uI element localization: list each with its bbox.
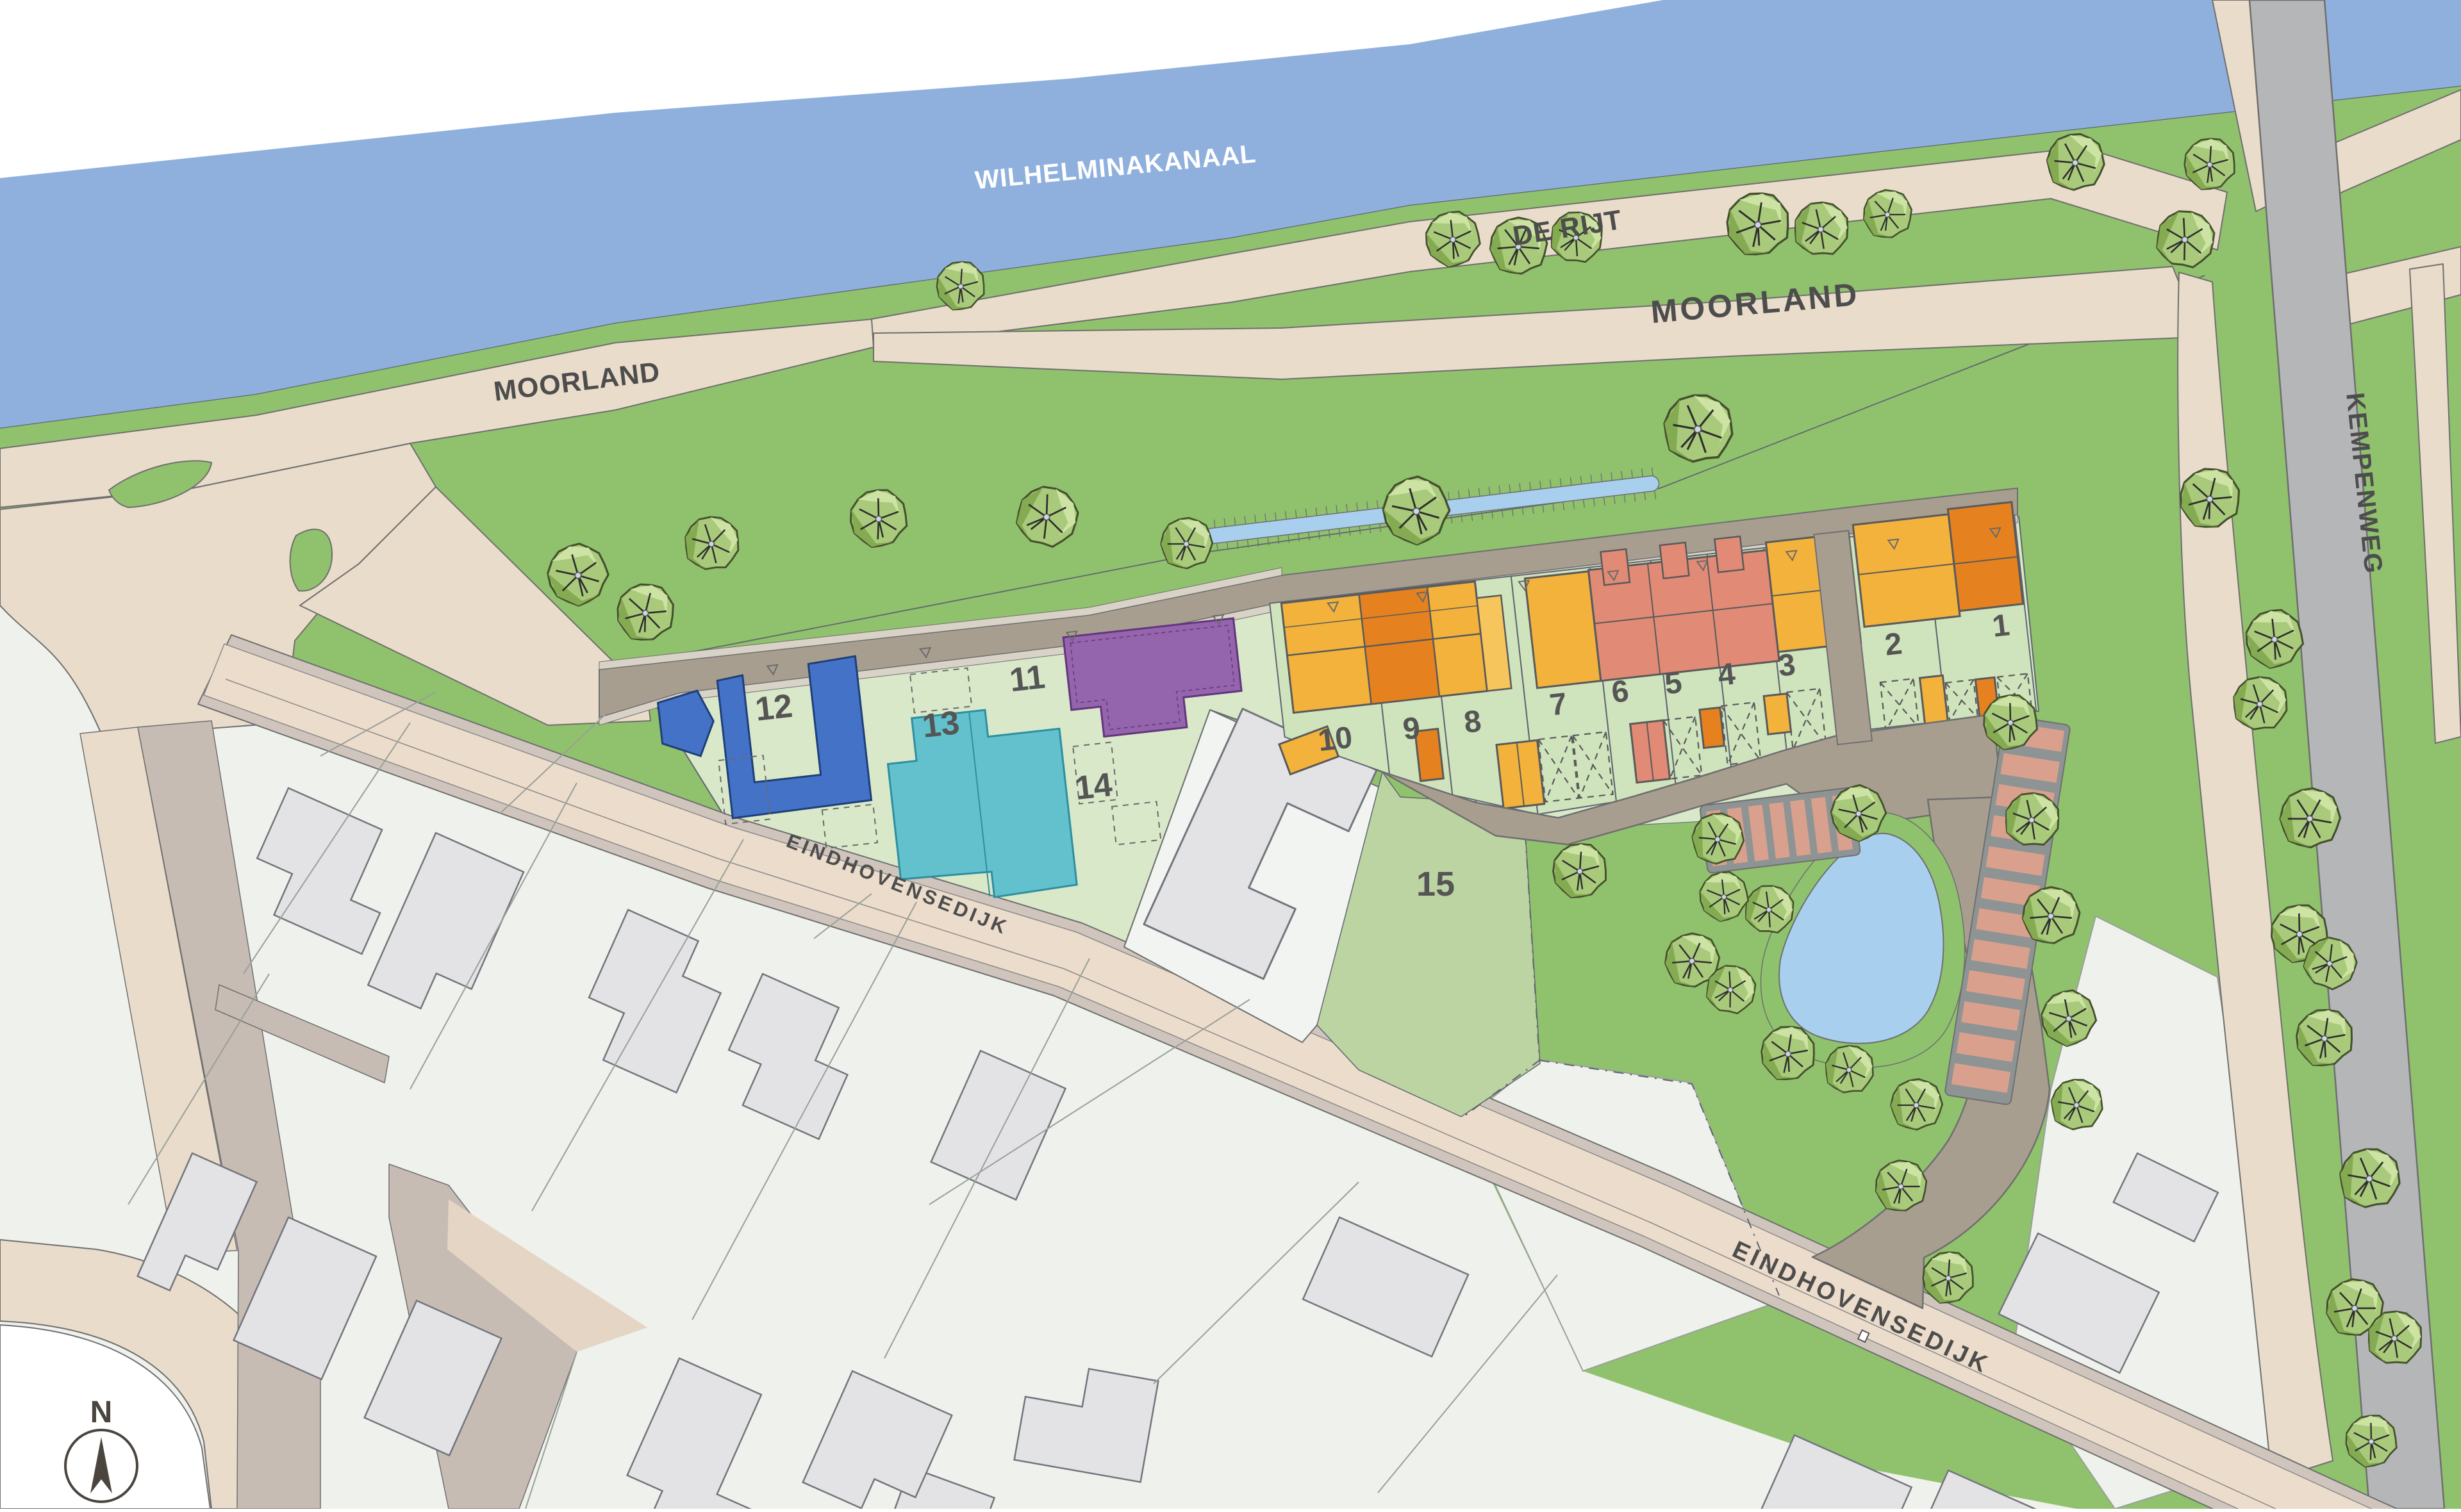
svg-text:12: 12 bbox=[754, 687, 795, 728]
svg-text:N: N bbox=[90, 1395, 113, 1429]
svg-text:10: 10 bbox=[1316, 721, 1354, 759]
svg-text:13: 13 bbox=[920, 704, 961, 745]
svg-text:15: 15 bbox=[1416, 865, 1455, 903]
svg-text:14: 14 bbox=[1073, 766, 1114, 807]
svg-text:11: 11 bbox=[1007, 659, 1047, 700]
